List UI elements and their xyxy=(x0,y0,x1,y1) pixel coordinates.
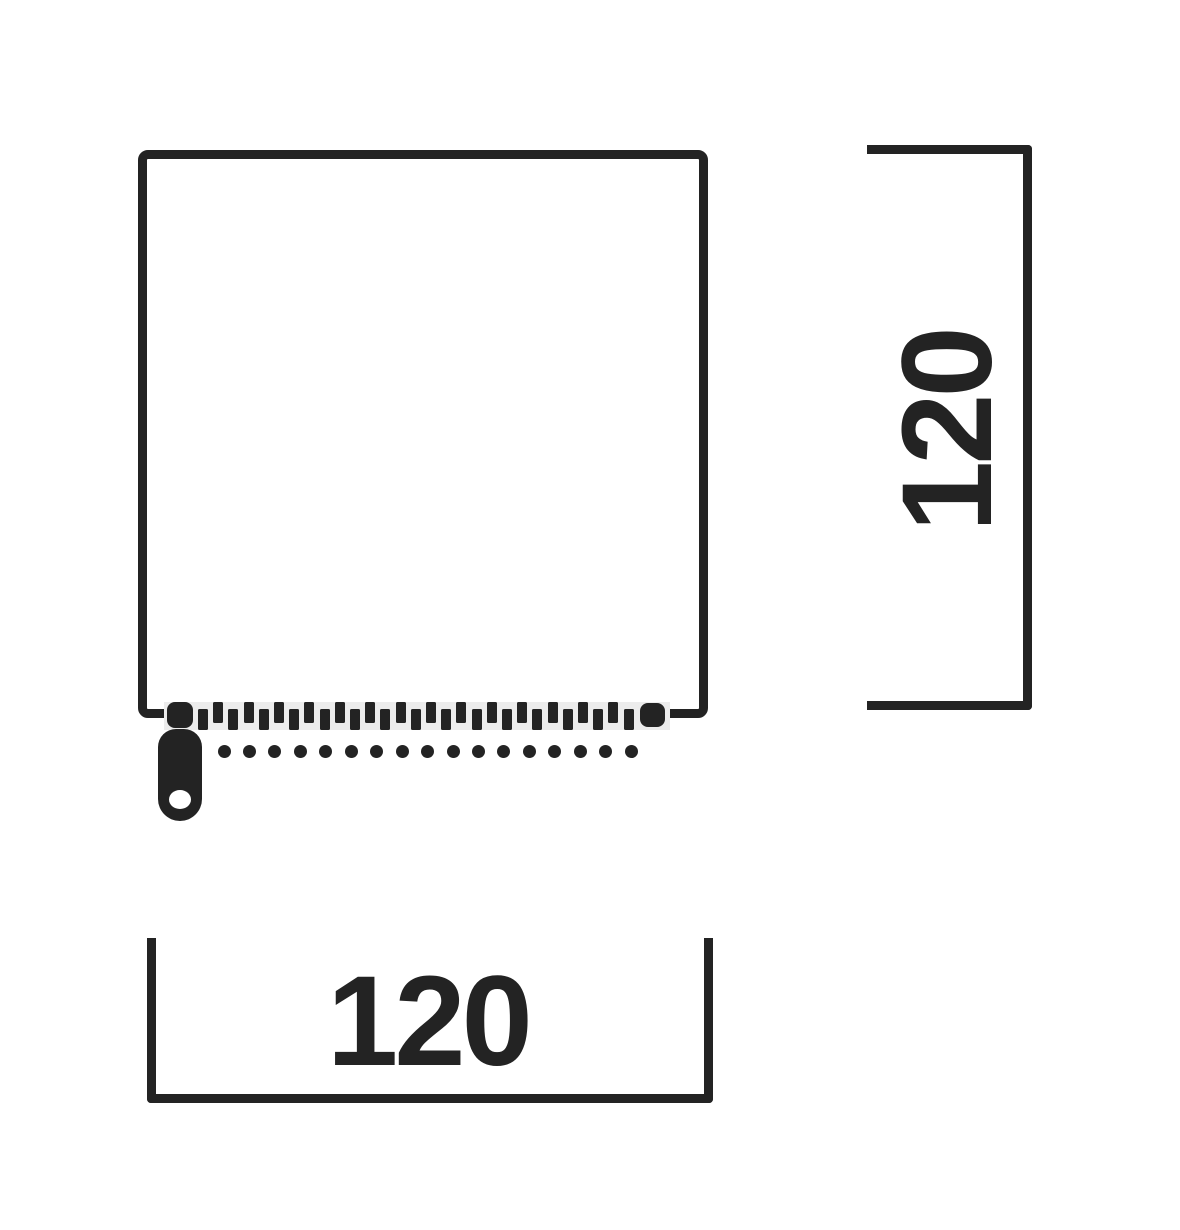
zipper-pull-icon xyxy=(158,729,202,821)
height-dimension-label: 120 xyxy=(884,330,1012,532)
stitch-dot xyxy=(523,745,536,758)
stitch-dot xyxy=(497,745,510,758)
stitch-dot xyxy=(243,745,256,758)
stitch-dot xyxy=(345,745,358,758)
zipper-end-stop-icon xyxy=(640,703,665,727)
zipper-tooth xyxy=(472,709,482,730)
stitch-dot xyxy=(548,745,561,758)
zipper-tooth xyxy=(213,702,223,723)
zipper-tooth xyxy=(411,709,421,730)
zipper-tooth xyxy=(441,709,451,730)
zipper-slider-icon xyxy=(167,702,193,728)
zipper-tooth xyxy=(593,709,603,730)
zipper-tooth xyxy=(259,709,269,730)
zipper-tooth xyxy=(426,702,436,723)
stitch-dot xyxy=(447,745,460,758)
zipper-tooth xyxy=(228,709,238,730)
stitch-dot xyxy=(294,745,307,758)
stitch-dot xyxy=(599,745,612,758)
stitch-dot xyxy=(268,745,281,758)
zipper-tooth xyxy=(563,709,573,730)
diagram-canvas: 120 120 xyxy=(0,0,1180,1230)
zipper-tooth xyxy=(532,709,542,730)
stitch-dot xyxy=(396,745,409,758)
zipper-tooth xyxy=(198,709,208,730)
zipper-tooth xyxy=(487,702,497,723)
zipper-tooth xyxy=(365,702,375,723)
zipper-tooth xyxy=(517,702,527,723)
cushion-outline xyxy=(138,150,708,718)
zipper-tooth xyxy=(335,702,345,723)
zipper-tooth xyxy=(380,709,390,730)
zipper-tooth xyxy=(624,709,634,730)
zipper-tooth xyxy=(456,702,466,723)
stitch-dot xyxy=(370,745,383,758)
zipper-tooth xyxy=(608,702,618,723)
stitch-dot xyxy=(319,745,332,758)
zipper-tooth xyxy=(289,709,299,730)
stitch-dot xyxy=(625,745,638,758)
zipper-tooth xyxy=(396,702,406,723)
zipper-tooth xyxy=(548,702,558,723)
stitch-dot xyxy=(472,745,485,758)
zipper-tooth xyxy=(274,702,284,723)
zipper-tooth xyxy=(350,709,360,730)
stitch-dot xyxy=(574,745,587,758)
zipper-tooth xyxy=(578,702,588,723)
stitch-dot xyxy=(218,745,231,758)
stitch-dot xyxy=(421,745,434,758)
zipper-tooth xyxy=(244,702,254,723)
zipper-tooth xyxy=(502,709,512,730)
width-dimension-label: 120 xyxy=(327,958,529,1086)
zipper-pull-hole xyxy=(169,790,191,809)
zipper-tooth xyxy=(304,702,314,723)
zipper-tooth xyxy=(320,709,330,730)
